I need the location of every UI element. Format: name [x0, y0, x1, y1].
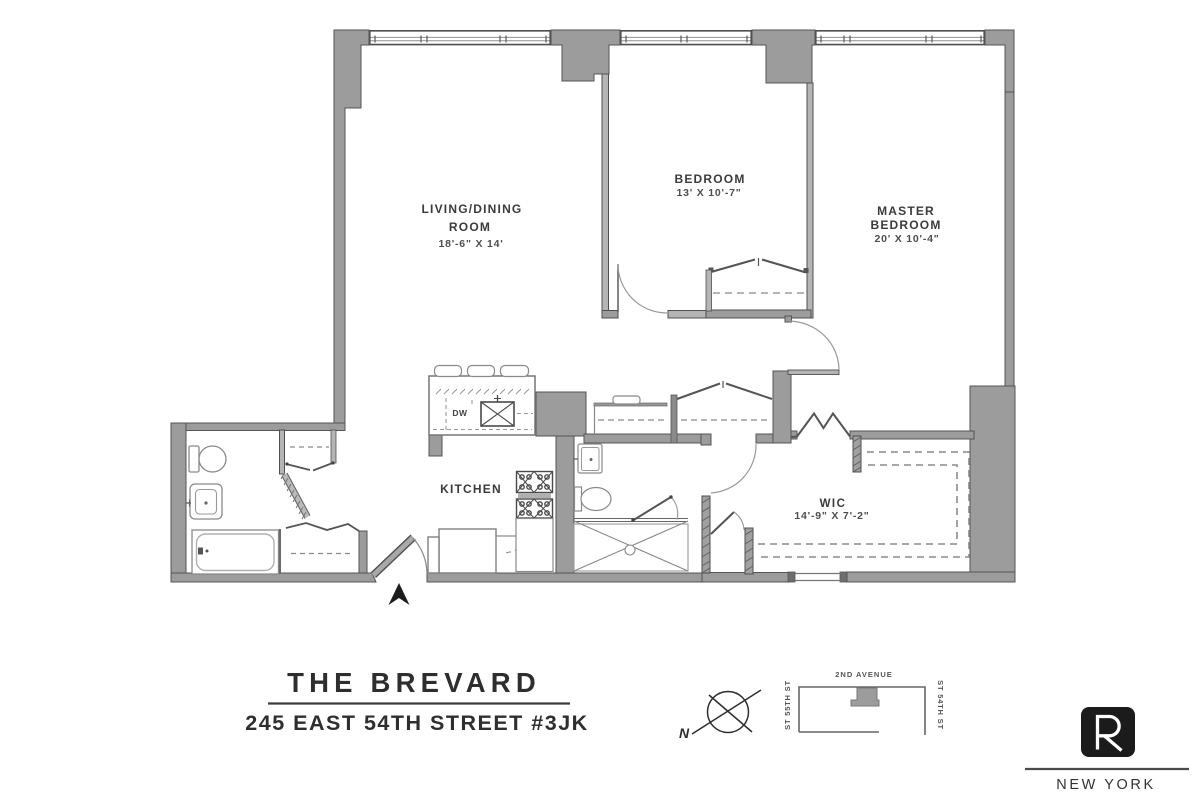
svg-text:245 EAST 54TH STREET #3JK: 245 EAST 54TH STREET #3JK — [245, 711, 588, 735]
svg-text:ST 54TH ST: ST 54TH ST — [936, 680, 945, 730]
svg-text:LIVING/DINING: LIVING/DINING — [422, 202, 523, 216]
svg-text:KITCHEN: KITCHEN — [440, 482, 502, 496]
svg-text:MASTER: MASTER — [877, 204, 935, 218]
svg-text:ROOM: ROOM — [449, 220, 491, 234]
svg-text:20' X 10'-4": 20' X 10'-4" — [874, 233, 939, 245]
svg-text:NEW YORK: NEW YORK — [1056, 777, 1156, 793]
svg-text:ST 55TH ST: ST 55TH ST — [783, 680, 792, 730]
svg-text:14'-9" X 7'-2": 14'-9" X 7'-2" — [794, 510, 869, 522]
svg-text:BEDROOM: BEDROOM — [674, 172, 745, 186]
svg-text:WIC: WIC — [820, 498, 847, 510]
svg-text:DW: DW — [452, 408, 468, 418]
svg-text:BEDROOM: BEDROOM — [870, 218, 941, 232]
svg-text:13' X 10'-7": 13' X 10'-7" — [676, 187, 741, 199]
svg-text:18'-6" X 14': 18'-6" X 14' — [438, 238, 503, 250]
svg-text:THE BREVARD: THE BREVARD — [287, 667, 541, 698]
svg-text:2ND AVENUE: 2ND AVENUE — [835, 670, 893, 679]
svg-text:N: N — [679, 725, 690, 741]
